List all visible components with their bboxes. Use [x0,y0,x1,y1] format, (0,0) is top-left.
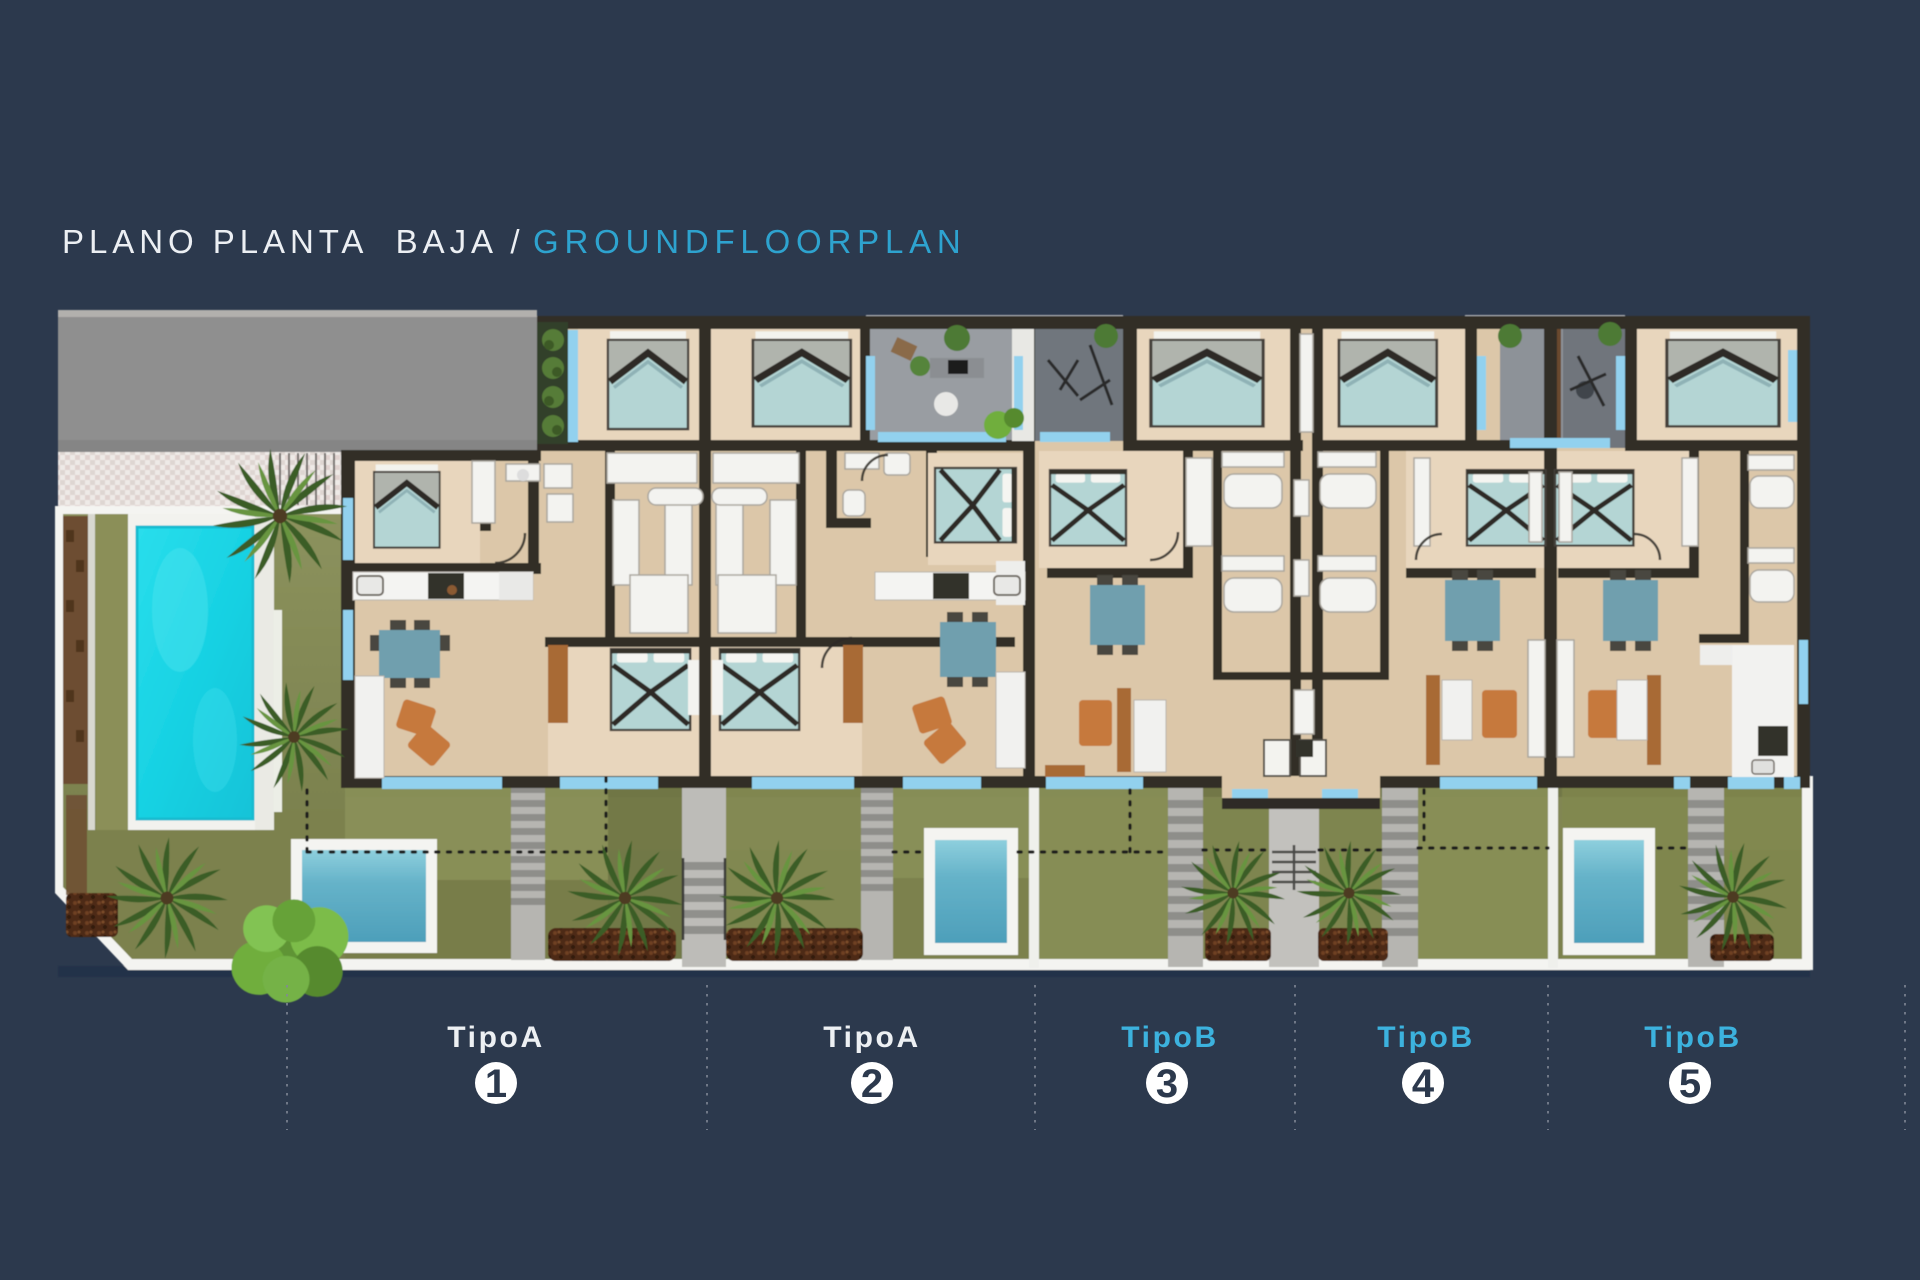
svg-text:TipoB: TipoB [1377,1021,1474,1054]
svg-text:TipoB: TipoB [1121,1021,1218,1054]
svg-text:4: 4 [1412,1062,1435,1106]
svg-text:TipoA: TipoA [823,1021,920,1054]
svg-text:5: 5 [1679,1062,1701,1106]
svg-text:1: 1 [485,1062,507,1106]
svg-text:TipoA: TipoA [447,1021,544,1054]
svg-text:GROUNDFLOORPLAN: GROUNDFLOORPLAN [533,223,967,260]
svg-text:PLANO PLANTA BAJA /: PLANO PLANTA BAJA / [62,223,524,260]
svg-text:TipoB: TipoB [1644,1021,1741,1054]
svg-text:3: 3 [1156,1062,1178,1106]
svg-text:2: 2 [861,1062,883,1106]
